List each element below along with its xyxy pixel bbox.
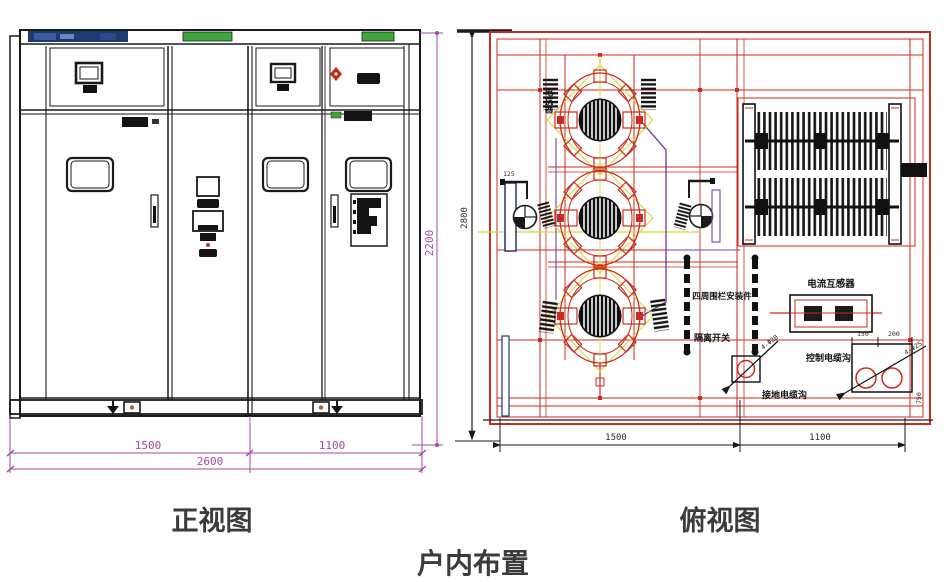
dim-front-left-width: 1500 — [135, 439, 162, 452]
green-indicator-strip-left — [183, 32, 232, 41]
dim-fan-offset: 125 — [503, 170, 515, 178]
caption-top-view: 俯视图 — [680, 505, 761, 536]
dim-bolt-callout-right: 4-Φ25 — [903, 339, 924, 356]
front-view-drawing — [10, 30, 422, 418]
resistor-terminal-tab — [901, 163, 927, 177]
clamp-wedge — [543, 78, 558, 110]
clamp-wedge — [641, 78, 656, 110]
dim-hole-spacing-2: 200 — [888, 330, 900, 338]
cabinet-left-side-panel — [10, 36, 20, 418]
label-control-cable-trench: 控制电缆沟 — [806, 352, 851, 363]
caption-footer: 户内布置 — [417, 547, 529, 580]
top-view-drawing: 2800 — [455, 31, 933, 452]
panel-button[interactable] — [357, 73, 380, 84]
engineering-drawing-page: 1500 1100 2600 2200 2800 — [0, 0, 944, 582]
green-indicator-strip-right — [362, 32, 394, 41]
clamp-wedge — [650, 298, 669, 332]
door-label-plate — [122, 117, 148, 127]
dim-hole-spacing-1: 150 — [857, 330, 869, 338]
green-chip — [331, 112, 341, 118]
dim-front-height: 2200 — [423, 230, 436, 257]
reactor-coil-phase-a — [547, 65, 653, 175]
dim-front-total-width: 2600 — [197, 455, 224, 468]
label-fence: 四周围栏安装件 — [692, 291, 752, 301]
reactor-coil-phase-b — [547, 163, 653, 273]
drawing-canvas: 1500 1100 2600 2200 2800 — [0, 0, 944, 582]
current-transformer-box — [770, 295, 882, 332]
dim-top-height: 2800 — [460, 207, 470, 229]
indicator-lamp — [206, 243, 210, 247]
caption-front-view: 正视图 — [172, 506, 253, 536]
resistor-bank — [743, 104, 927, 244]
dim-edge-offset: 750 — [915, 392, 923, 404]
label-disconnect-switch: 隔离开关 — [694, 332, 730, 343]
support-insulator-left: 125 — [500, 170, 537, 251]
dim-top-right-width: 1100 — [809, 433, 831, 443]
top-view-dimensions: 1500 1100 — [500, 400, 905, 452]
clamp-wedge — [539, 300, 558, 334]
label-current-transformer: 电流互感器 — [807, 278, 855, 290]
dim-top-left-width: 1500 — [605, 433, 627, 443]
cable-trench-edge — [502, 336, 509, 416]
anchor-bolt-detail-right: 150 200 4-Φ25 750 — [845, 330, 926, 404]
door-label-plate-2 — [344, 111, 372, 121]
dim-front-right-width: 1100 — [319, 439, 346, 452]
label-ground-cable-trench: 接地电缆沟 — [762, 389, 807, 400]
reactor-coil-phase-c — [547, 261, 653, 371]
